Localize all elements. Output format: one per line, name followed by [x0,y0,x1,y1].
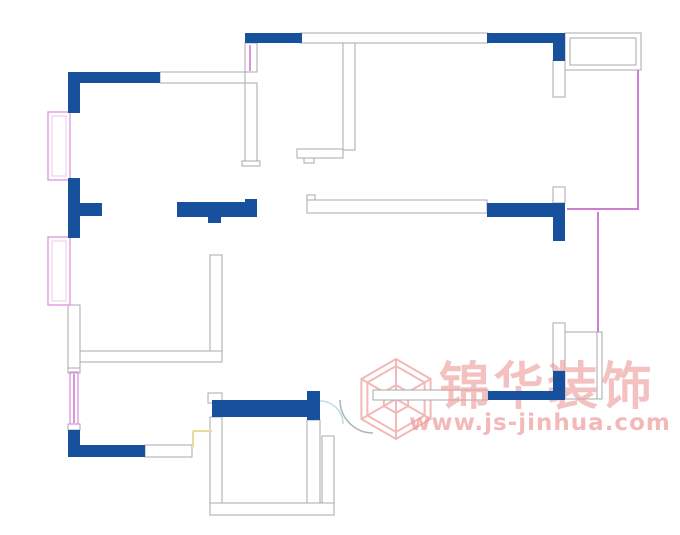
blue-wall [487,33,565,43]
blue-wall [487,203,565,217]
outlined-wall [307,200,487,213]
outlined-wall [80,351,222,362]
blue-wall [553,217,565,241]
outlined-wall [210,503,334,515]
outlined-wall [68,424,80,430]
outlined-wall [553,187,565,203]
blue-wall [68,72,160,83]
outlined-wall [322,436,334,503]
blue-wall [68,178,80,238]
blue-wall [553,43,565,61]
outlined-wall [160,72,245,83]
floorplan-canvas: 锦华装饰 www.js-jinhua.com [0,0,680,535]
outlined-wall [553,60,565,97]
outline-rects-layer [565,33,641,399]
blue-wall [177,202,257,217]
outlined-wall [300,33,488,43]
blue-wall [553,371,565,400]
outlined-wall [242,161,260,166]
blue-walls-layer [68,33,565,457]
blue-wall [245,33,302,43]
outlined-wall [307,195,315,200]
window-rect-inner [52,116,66,176]
blue-wall [307,391,320,420]
outlined-wall [245,83,257,161]
floorplan-page: 锦华装饰 www.js-jinhua.com [0,0,680,535]
blue-wall [80,203,102,216]
outlined-wall [307,420,320,503]
blue-wall [68,83,80,113]
window-rect [48,237,70,305]
outlined-wall [304,158,314,163]
outline-rect [570,38,636,65]
window-rect [48,112,70,180]
outline-rect [565,33,641,70]
blue-wall [212,400,320,417]
watermark-brand-text: 锦华装饰 [439,358,655,417]
blue-wall [68,445,145,457]
watermark-url-text: www.js-jinhua.com [409,410,671,436]
outlined-wall [297,149,343,158]
window-rect-inner [52,241,66,301]
outlined-wall [145,445,192,457]
blue-wall [245,199,257,203]
outlined-wall [343,43,355,150]
outlined-wall [210,255,222,352]
outlined-walls-layer [68,33,565,515]
blue-wall [208,217,221,223]
outlined-wall [68,305,80,368]
